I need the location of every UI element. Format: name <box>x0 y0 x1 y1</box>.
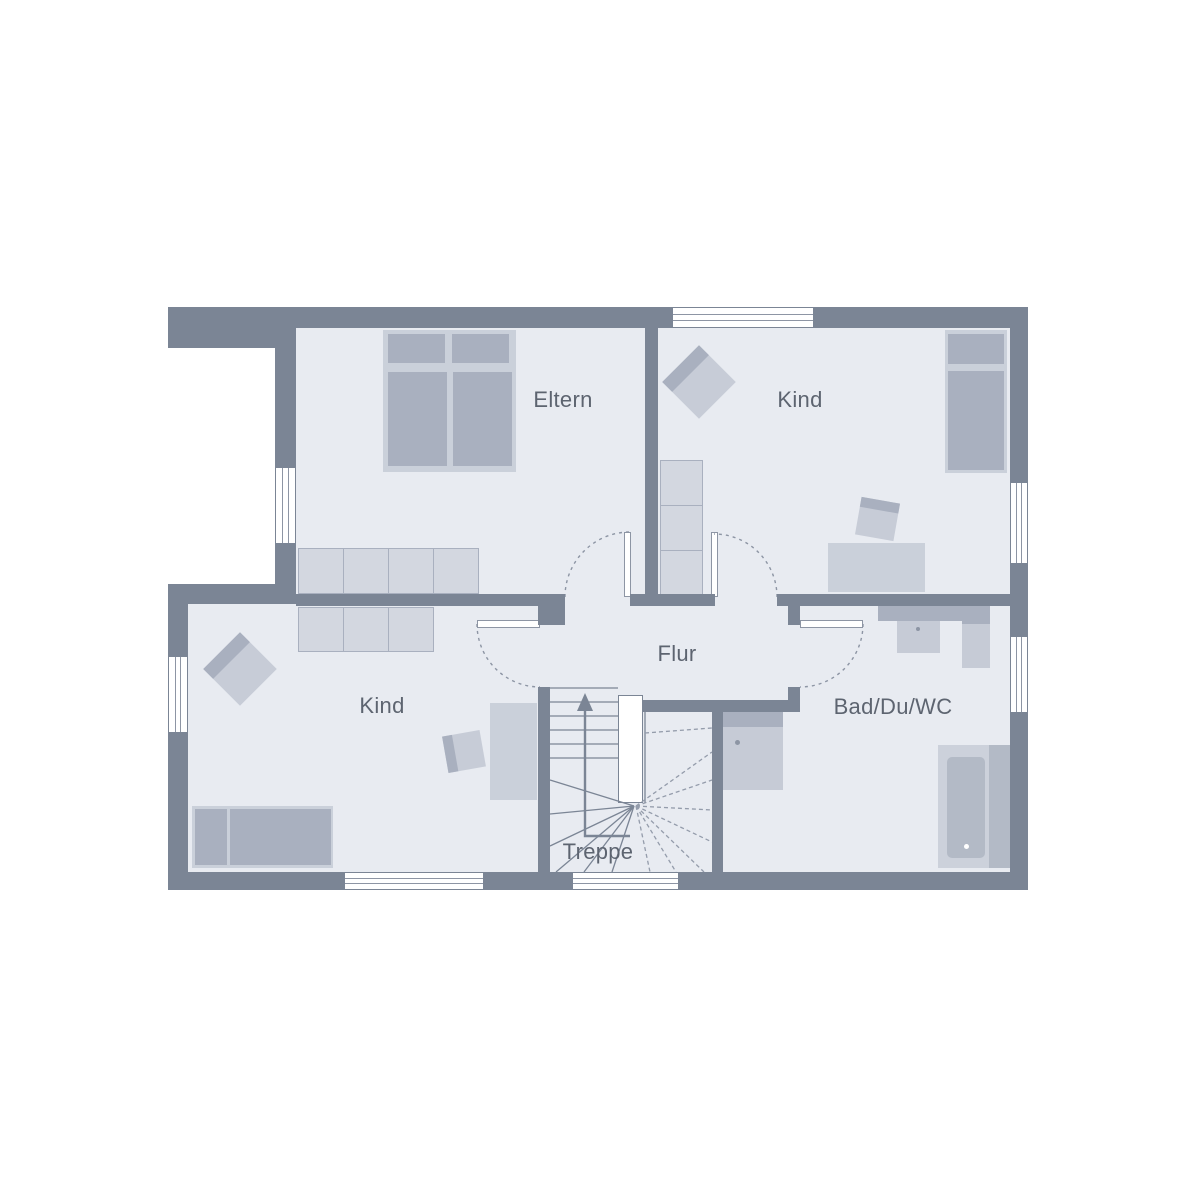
room-label-kind-bottom: Kind <box>359 693 404 719</box>
room-label-bad: Bad/Du/WC <box>834 694 953 720</box>
kind-bottom-chair <box>442 730 486 773</box>
floor-plan-page: Eltern Kind Kind Flur Bad/Du/WC Treppe <box>0 0 1200 1200</box>
window-kind-top-east <box>1011 483 1027 563</box>
room-label-kind-top: Kind <box>777 387 822 413</box>
window-kind-bottom-south <box>345 873 483 889</box>
kind-top-desk <box>828 543 925 592</box>
eltern-door-leaf <box>624 532 631 597</box>
wall-flur-north-stub <box>630 594 715 606</box>
eltern-wardrobe <box>298 548 479 594</box>
wall-eltern-west <box>275 328 296 604</box>
toilet-tank <box>962 605 990 624</box>
window-treppe-south <box>573 873 678 889</box>
window-top <box>673 308 813 327</box>
wall-flur-north-east <box>777 594 1010 606</box>
room-label-eltern: Eltern <box>533 387 592 413</box>
kind-top-chair <box>855 497 900 541</box>
wall-stair-east <box>712 712 723 872</box>
wall-exterior-right <box>1010 307 1028 890</box>
bathtub-deck <box>989 745 1010 868</box>
bathtub-drain <box>964 844 969 849</box>
stair-void <box>618 695 643 803</box>
wall-bad-west-upper <box>788 606 800 625</box>
shower-drain <box>735 740 740 745</box>
bed-mattress <box>948 371 1004 470</box>
bed-mattress <box>230 809 331 865</box>
wall-eltern-kind-divider <box>645 328 658 594</box>
bathtub-basin <box>947 757 985 858</box>
toilet-bowl <box>962 624 990 668</box>
wall-door-jamb <box>538 604 565 625</box>
wall-exterior-top <box>168 307 1028 328</box>
washbasin <box>897 621 940 653</box>
bed-mattress <box>388 372 447 466</box>
washbasin-faucet <box>916 627 920 631</box>
wall-flur-north-west <box>296 594 565 606</box>
bed-mattress <box>453 372 512 466</box>
wall-stair-south <box>643 700 800 712</box>
window-bad-east <box>1011 637 1027 712</box>
kind-top-cupboard <box>660 460 703 596</box>
kind-bottom-desk <box>490 703 537 800</box>
kind-bottom-wardrobe <box>298 607 434 652</box>
shower-wall-strip <box>723 711 783 727</box>
window-eltern-west <box>276 468 295 543</box>
floor-plan: Eltern Kind Kind Flur Bad/Du/WC Treppe <box>0 0 1200 1200</box>
room-label-treppe: Treppe <box>563 839 634 865</box>
bed-pillow <box>388 334 445 363</box>
kind-top-door-leaf <box>711 532 718 597</box>
kind-bottom-door-leaf <box>477 620 540 628</box>
bed-pillow <box>195 809 227 865</box>
wall-stair-west <box>538 687 550 872</box>
room-label-flur: Flur <box>657 641 696 667</box>
wall-exterior-left <box>168 584 188 890</box>
bad-door-leaf <box>800 620 863 628</box>
bed-pillow <box>452 334 509 363</box>
bed-pillow <box>948 334 1004 364</box>
wall-exterior-top-left-corner <box>168 307 275 348</box>
window-kind-bottom-west <box>169 657 187 732</box>
